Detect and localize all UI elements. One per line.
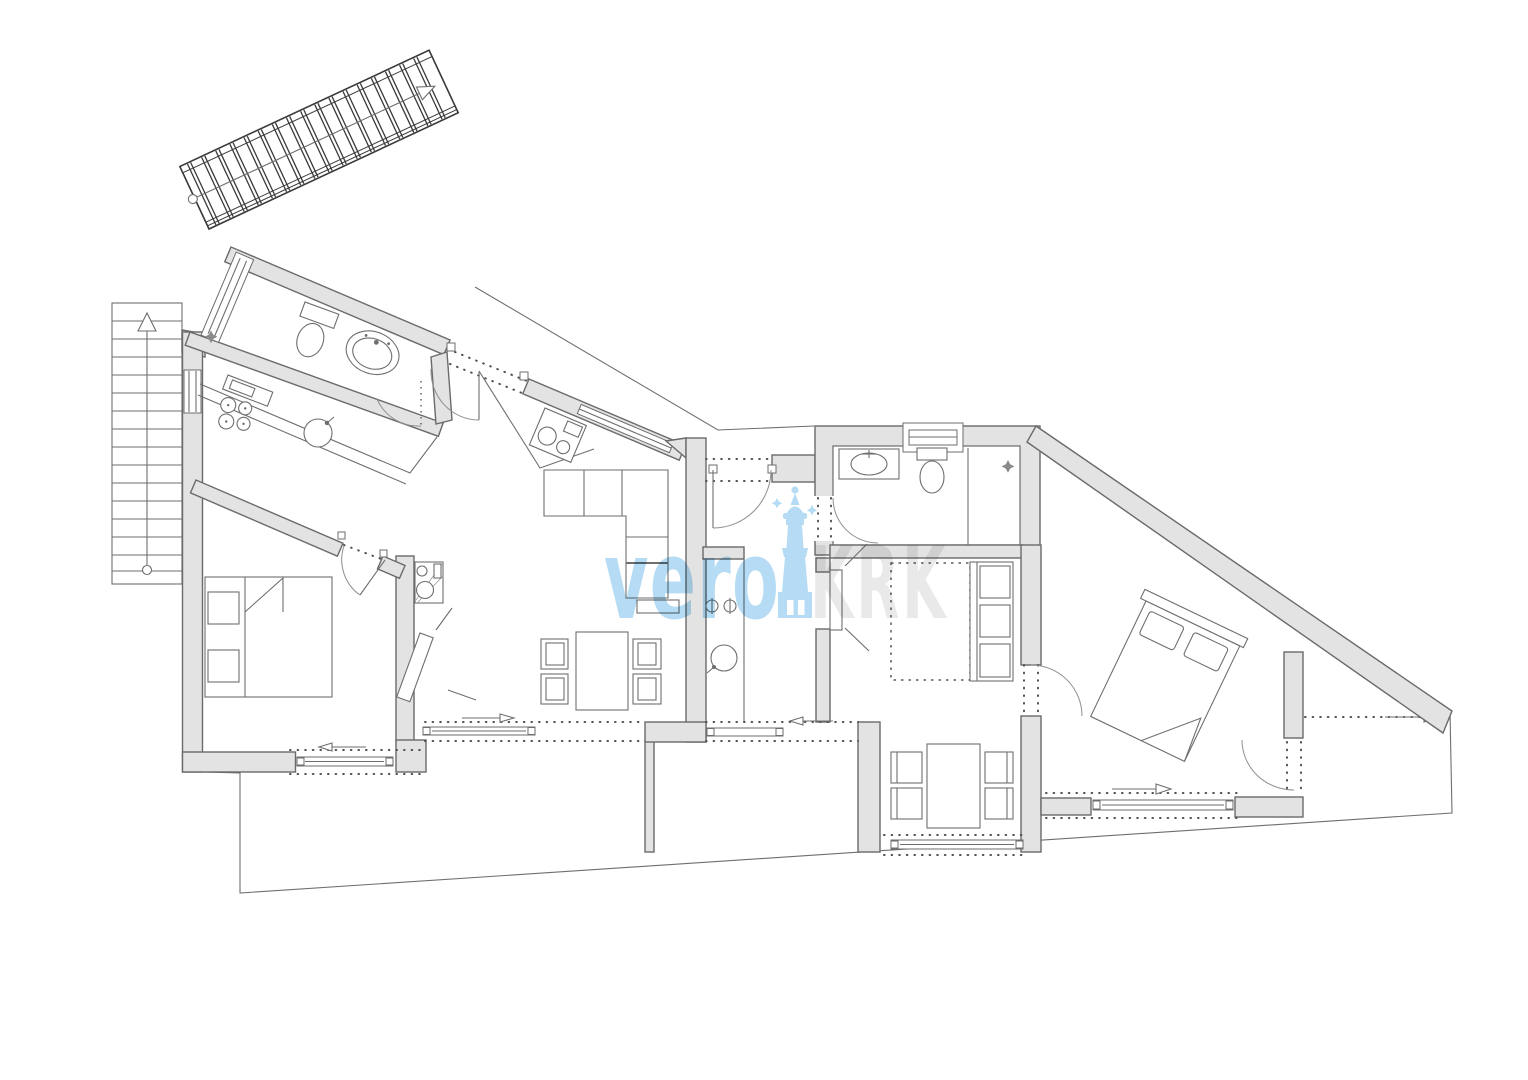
- stair-start-node: [143, 566, 152, 575]
- wall-living-south-corner: [645, 722, 706, 742]
- bedroom-3: [1046, 589, 1248, 818]
- loggia-table: [927, 744, 980, 828]
- loggia-dining: [884, 744, 1025, 855]
- bed1-door-arc: [342, 546, 360, 595]
- door-jamb: [380, 550, 387, 557]
- cooktop-4-burner: [210, 375, 273, 440]
- wall-hall-bedroom2-stub-b: [816, 629, 830, 722]
- bed3: [1085, 589, 1247, 763]
- bed1-door-leaf: [360, 560, 385, 595]
- hall-sliding-door: [707, 728, 783, 736]
- sofa-ottoman: [637, 600, 679, 613]
- corner-sofa: [544, 470, 668, 598]
- wall-entry-east-stub: [772, 455, 815, 482]
- pocket-door: [830, 544, 869, 651]
- bed1-sliding-door: [297, 757, 393, 766]
- hall: [706, 459, 776, 722]
- wall-bedroom3-south-block: [1235, 797, 1303, 817]
- wall-bedroom1-diagonal-a: [190, 480, 342, 556]
- wall-nw-diagonal: [225, 247, 450, 355]
- wall-bedroom3-west-lower: [1021, 716, 1041, 852]
- wall-bedroom3-south-foot: [1041, 798, 1091, 815]
- bedroom-1: [205, 532, 476, 702]
- wall-bedroom3-west-upper: [1021, 545, 1041, 665]
- wall-loggia-west: [858, 722, 880, 852]
- door-jamb: [338, 532, 345, 539]
- wall-se-diagonal: [1027, 426, 1452, 733]
- south-sliding-walls: [290, 714, 858, 774]
- wall-hall-bedroom2-stub-a: [816, 558, 830, 572]
- exterior-stairs-canopy: [174, 50, 458, 232]
- window-west-wall: [184, 370, 201, 413]
- sink-2: [839, 449, 899, 479]
- entry-door-arc: [713, 470, 771, 528]
- wall-bedroom1-corner: [396, 740, 426, 772]
- door-jamb: [520, 372, 528, 380]
- bedroom-2: [830, 544, 1082, 716]
- dining-table: [576, 632, 628, 710]
- bed3-sliding-door: [1093, 800, 1233, 810]
- direction-arrow-right: [500, 714, 514, 722]
- storage-room: [1242, 740, 1301, 790]
- bathroom2-door-gap: [814, 496, 834, 541]
- niche-cap: [703, 547, 744, 559]
- terrace-post: [645, 740, 654, 852]
- laundry-symbols: [706, 598, 736, 614]
- living-sliding-door: [423, 727, 535, 735]
- wall-bedroom1-south: [183, 752, 296, 772]
- nightstand: [208, 650, 239, 682]
- loggia-sliding-door: [891, 840, 1023, 849]
- door-jamb: [447, 343, 455, 351]
- wall-storage-stub: [1284, 652, 1303, 738]
- nightstand: [208, 592, 239, 624]
- window-nw-strip: [201, 252, 254, 342]
- bed2-dashed: [891, 563, 970, 680]
- living-room: [479, 371, 679, 710]
- staircase: [112, 303, 182, 584]
- wardrobe: [970, 562, 1013, 681]
- floor-plan-drawing: [0, 0, 1528, 1080]
- door-jamb: [768, 465, 776, 473]
- direction-arrow-left: [790, 717, 803, 725]
- roof-edge-line: [475, 287, 814, 430]
- wall-bedroom1-east: [396, 556, 414, 742]
- toilet-1: [288, 302, 339, 362]
- boiler-unit: [415, 562, 443, 603]
- wall-living-east: [686, 438, 706, 742]
- floor-plan-page: vero KRK: [0, 0, 1528, 1080]
